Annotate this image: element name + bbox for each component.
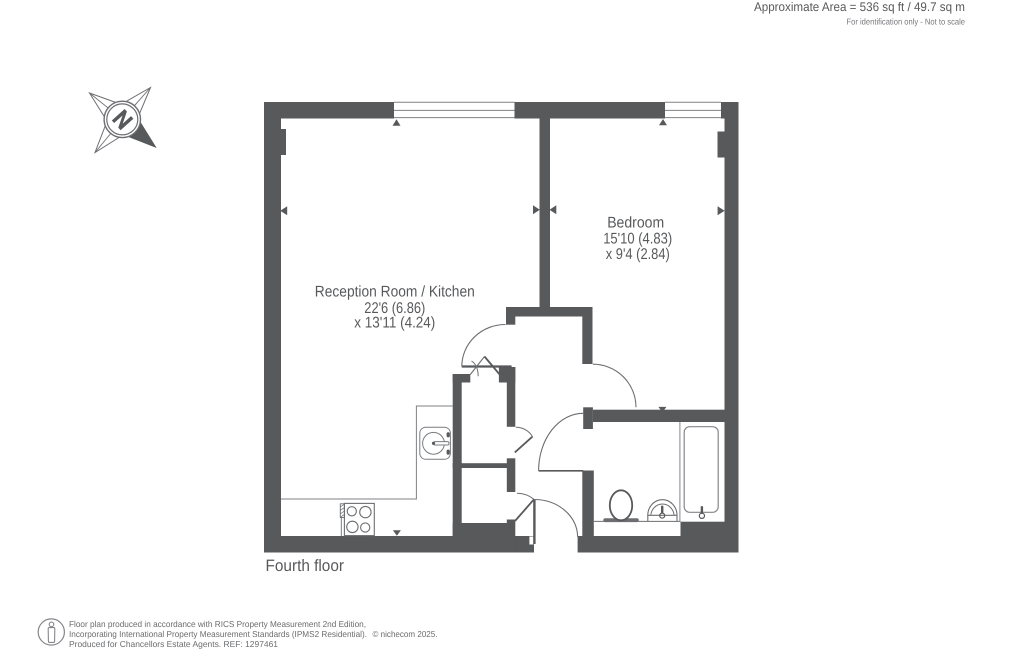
svg-text:Fourth floor: Fourth floor — [266, 557, 345, 575]
svg-text:x 13'11 (4.24): x 13'11 (4.24) — [354, 315, 435, 332]
svg-text:© nichecom 2025.: © nichecom 2025. — [373, 629, 438, 639]
svg-text:x 9'4 (2.84): x 9'4 (2.84) — [606, 246, 670, 263]
svg-text:Incorporating International Pr: Incorporating International Property Mea… — [69, 629, 367, 639]
svg-text:Floor plan produced in accorda: Floor plan produced in accordance with R… — [69, 619, 366, 629]
svg-text:15'10 (4.83): 15'10 (4.83) — [603, 231, 672, 248]
svg-text:Reception Room / Kitchen: Reception Room / Kitchen — [315, 284, 475, 301]
svg-text:Bedroom: Bedroom — [607, 215, 664, 232]
svg-text:Produced for Chancellors Estat: Produced for Chancellors Estate Agents. … — [69, 639, 278, 649]
svg-text:For identification only - Not: For identification only - Not to scale — [847, 17, 966, 27]
svg-text:Approximate Area = 536 sq ft /: Approximate Area = 536 sq ft / 49.7 sq m — [754, 0, 965, 14]
